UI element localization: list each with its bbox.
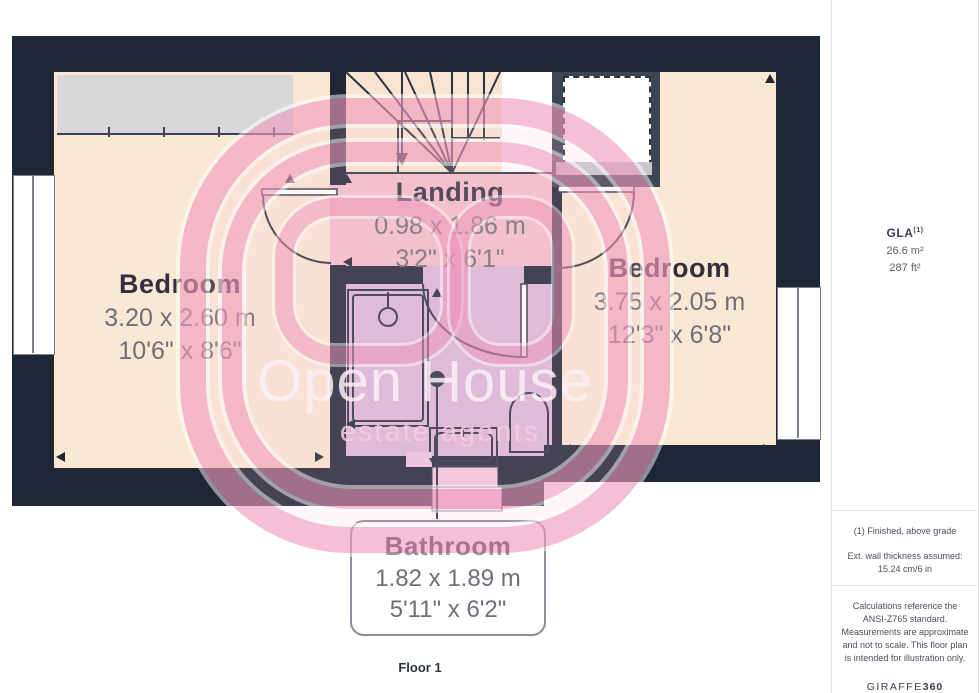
door-left-bedroom (262, 189, 337, 263)
room-dims-imperial: 5'11" x 6'2" (352, 595, 544, 624)
brand-name: GIRAFFE (867, 681, 923, 693)
dimension-arrow-icon (315, 452, 324, 462)
info-sidebar: GLA(1) 26.6 m² 287 ft² (1) Finished, abo… (831, 0, 979, 693)
gla-area-imperial: 287 ft² (832, 262, 978, 274)
toilet (510, 393, 548, 452)
staircase (346, 72, 552, 173)
room-name: Bathroom (352, 530, 544, 562)
floorplan: Landing 0.98 x 1.86 m 3'2" x 6'1" Bedroo… (0, 0, 828, 693)
sink (430, 428, 497, 466)
room-dims-imperial: 12'3" x 6'8" (557, 320, 782, 350)
brand-suffix: 360 (923, 681, 944, 693)
bedroom-left-label: Bedroom 3.20 x 2.60 m 10'6" x 8'6" (55, 268, 305, 366)
room-dims-metric: 1.82 x 1.89 m (352, 564, 544, 593)
room-dims-metric: 3.20 x 2.60 m (55, 303, 305, 333)
gla-footnote-marker: (1) (913, 227, 923, 234)
gla-label: GLA(1) (832, 226, 978, 240)
room-name: Landing (350, 176, 550, 208)
bathroom-callout: Bathroom 1.82 x 1.89 m 5'11" x 6'2" (350, 520, 546, 636)
bedroom-right-label: Bedroom 3.75 x 2.05 m 12'3" x 6'8" (557, 252, 782, 350)
floor-label: Floor 1 (360, 660, 480, 675)
room-dims-imperial: 3'2" x 6'1" (350, 244, 550, 274)
dimension-arrow-icon (432, 288, 442, 297)
gla-text: GLA (887, 226, 914, 240)
footnote: (1) Finished, above grade (841, 525, 969, 538)
disclaimer: Calculations reference the ANSI-Z765 sta… (841, 600, 969, 665)
shower (348, 290, 428, 426)
dimension-arrow-icon (56, 452, 65, 462)
dimension-arrow-icon (285, 174, 295, 183)
dimension-arrow-icon (765, 74, 775, 83)
room-dims-imperial: 10'6" x 8'6" (55, 336, 305, 366)
wall-thickness-note: Ext. wall thickness assumed: 15.24 cm/6 … (841, 550, 969, 576)
floorplan-image: Landing 0.98 x 1.86 m 3'2" x 6'1" Bedroo… (0, 0, 980, 693)
disclaimer-section: Calculations reference the ANSI-Z765 sta… (832, 585, 978, 693)
dimension-arrow-icon (763, 444, 772, 454)
room-name: Bedroom (557, 252, 782, 284)
brand-logo: GIRAFFE360 (841, 681, 969, 693)
notes-section: (1) Finished, above grade Ext. wall thic… (832, 510, 978, 585)
landing-label: Landing 0.98 x 1.86 m 3'2" x 6'1" (350, 176, 550, 274)
room-dims-metric: 0.98 x 1.86 m (350, 211, 550, 241)
room-dims-metric: 3.75 x 2.05 m (557, 287, 782, 317)
callout-dot (429, 371, 445, 387)
gla-block: GLA(1) 26.6 m² 287 ft² (832, 226, 978, 274)
gla-area-metric: 26.6 m² (832, 245, 978, 257)
room-name: Bedroom (55, 268, 305, 300)
dimension-arrow-icon (562, 444, 571, 454)
